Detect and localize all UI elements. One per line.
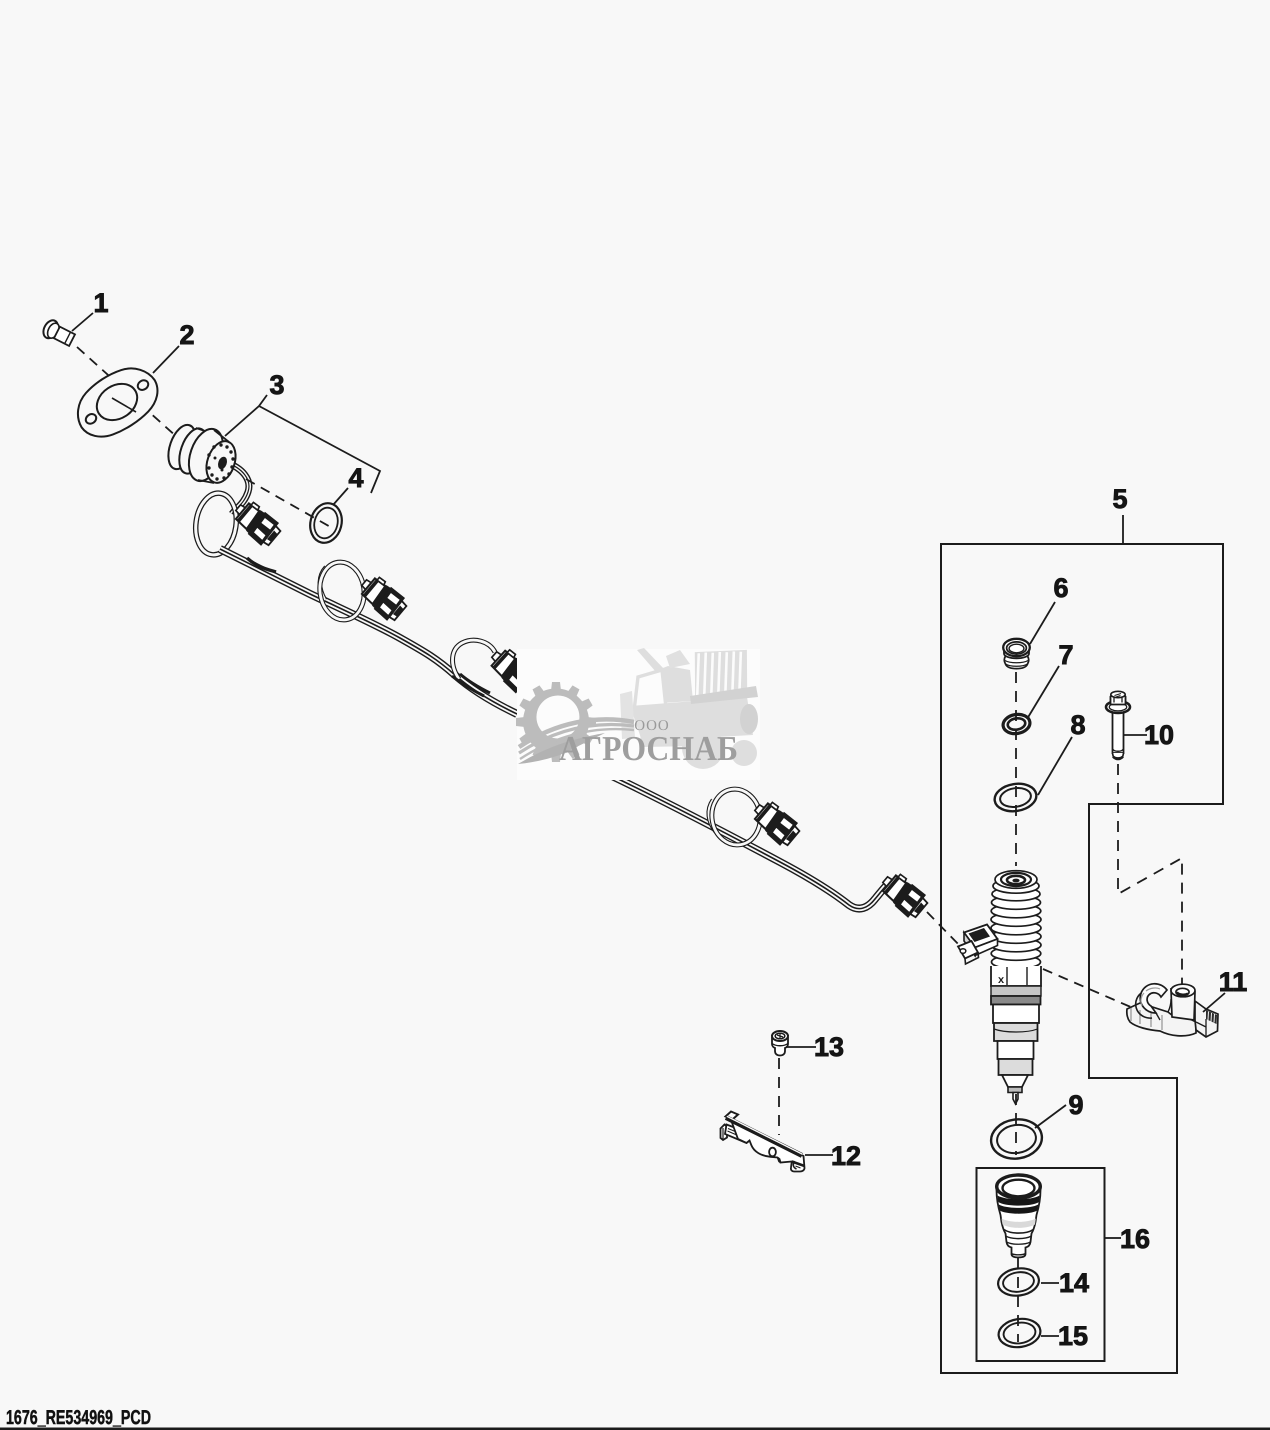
svg-text:12: 12 <box>831 1141 861 1171</box>
svg-text:9: 9 <box>1068 1090 1083 1120</box>
svg-text:x: x <box>998 974 1005 986</box>
svg-text:2: 2 <box>179 320 194 350</box>
svg-text:11: 11 <box>1219 967 1248 997</box>
svg-text:6: 6 <box>1053 573 1068 603</box>
svg-text:8: 8 <box>1070 710 1085 740</box>
svg-text:14: 14 <box>1059 1268 1089 1298</box>
svg-text:3: 3 <box>269 370 284 400</box>
svg-text:АГРОСНАБ: АГРОСНАБ <box>559 729 738 768</box>
svg-text:4: 4 <box>348 463 363 493</box>
svg-text:1676_RE534969_PCD: 1676_RE534969_PCD <box>6 1407 151 1429</box>
svg-text:10: 10 <box>1144 720 1174 750</box>
svg-text:13: 13 <box>814 1032 844 1062</box>
svg-text:7: 7 <box>1058 640 1073 670</box>
svg-text:5: 5 <box>1112 484 1127 514</box>
svg-text:15: 15 <box>1058 1321 1088 1351</box>
svg-text:16: 16 <box>1120 1224 1150 1254</box>
svg-text:1: 1 <box>93 288 108 318</box>
